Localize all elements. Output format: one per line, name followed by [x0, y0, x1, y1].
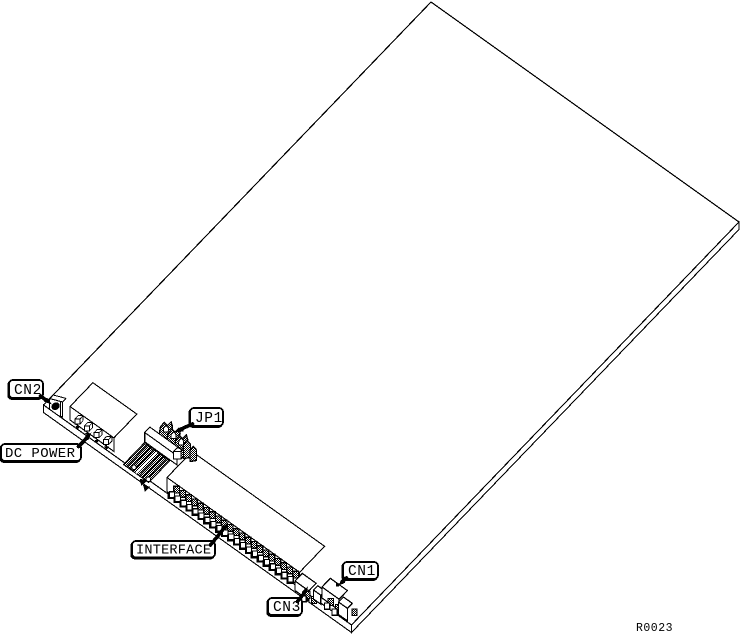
- svg-text:INTERFACE: INTERFACE: [136, 544, 211, 559]
- svg-text:DC POWER: DC POWER: [5, 446, 76, 462]
- svg-text:R0023: R0023: [636, 622, 673, 635]
- svg-text:CN1: CN1: [348, 564, 376, 580]
- svg-text:JP1: JP1: [195, 411, 223, 427]
- svg-text:CN2: CN2: [14, 383, 42, 399]
